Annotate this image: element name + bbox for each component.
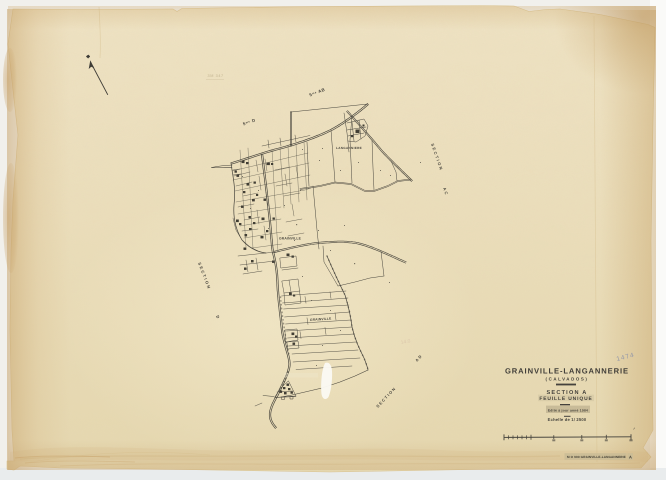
svg-text:M O 990 GRAINVILLE-LANGANNERI: M O 990 GRAINVILLE-LANGANNERIE — [567, 455, 626, 459]
svg-text:Echelle de 1/ 2500: Echelle de 1/ 2500 — [548, 417, 587, 422]
svg-text:FEUILLE UNIQUE: FEUILLE UNIQUE — [539, 396, 592, 402]
svg-text:Edité à jour anné 1984: Edité à jour anné 1984 — [548, 408, 588, 412]
svg-text:3M 347: 3M 347 — [208, 74, 224, 78]
svg-text:GRAINVILLE: GRAINVILLE — [279, 237, 302, 241]
svg-text:LANGANNIERE: LANGANNIERE — [336, 146, 362, 150]
svg-text:(CALVADOS): (CALVADOS) — [546, 377, 589, 382]
svg-text:GRAINVILLE-LANGANNERIE: GRAINVILLE-LANGANNERIE — [505, 367, 629, 376]
svg-text:A: A — [629, 455, 632, 460]
